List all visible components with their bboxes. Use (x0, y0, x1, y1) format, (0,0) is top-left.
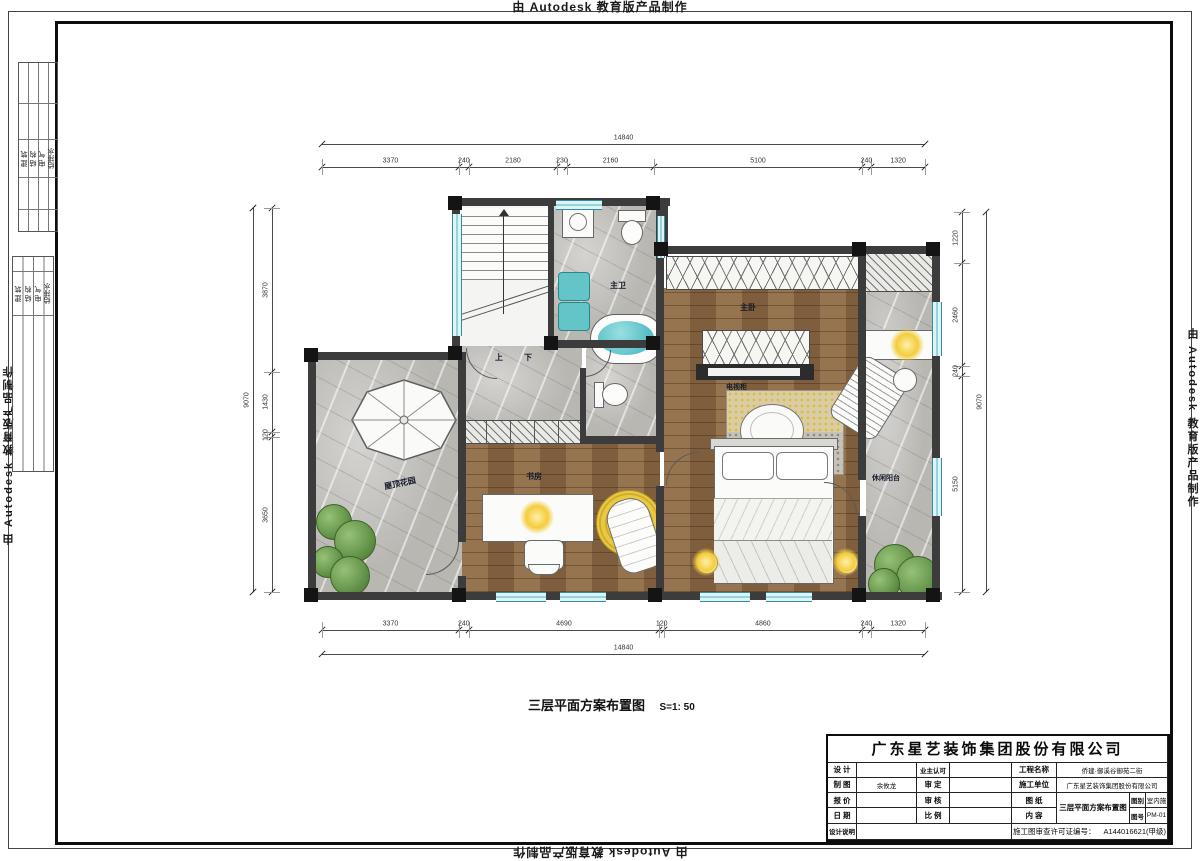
window (932, 458, 942, 516)
column (452, 588, 466, 602)
window (766, 592, 812, 602)
wall (580, 368, 586, 438)
column (926, 588, 940, 602)
dresser (702, 330, 810, 366)
field-note: 设计说明 (828, 824, 857, 840)
dimension-overall: 9070 (977, 394, 984, 410)
field-quote: 报 价 (828, 793, 857, 808)
stair-up-label: 上 (495, 352, 503, 363)
dimension-extension (925, 622, 926, 638)
floor-plan: 主卫 主卧 电视柜 书房 屋顶花园 休闲阳台 上 下 1484033702402… (0, 0, 1200, 859)
wall (656, 486, 664, 592)
washer-drum (569, 213, 587, 231)
field-owner: 业主认可 (917, 763, 950, 778)
window (700, 592, 750, 602)
wall (548, 206, 554, 342)
desk-lamp-glow (520, 500, 554, 534)
room-label-master-bath: 主卫 (610, 280, 626, 291)
stair-treads (462, 208, 548, 280)
dimension-value: 1320 (890, 621, 906, 628)
dimension-tick (921, 650, 928, 657)
dimension-overall: 14840 (614, 135, 633, 142)
room-label-tv-cabinet: 电视柜 (726, 382, 747, 392)
field-project-value: 侨建·御溪谷御苑二街 (1057, 763, 1168, 778)
field-design: 设 计 (828, 763, 857, 778)
dimension-value: 3370 (383, 621, 399, 628)
dimension-value: 2180 (505, 158, 521, 165)
field-content: 内 容 (1012, 808, 1057, 823)
permit-value: A144016621(甲级) (1103, 826, 1166, 837)
title-block: 广东星艺装饰集团股份有限公司 设 计 业主认可 工程名称 侨建·御溪谷御苑二街 … (826, 734, 1170, 842)
dimension-value: 230 (556, 158, 568, 165)
field-approve-value (950, 778, 1012, 793)
field-date-value (857, 808, 917, 823)
dimension-value: 240 (458, 621, 470, 628)
drawing-caption: 三层平面方案布置图 S=1: 50 (528, 695, 695, 715)
dimension-line (272, 208, 273, 592)
duvet (714, 498, 832, 541)
wall (458, 360, 466, 542)
lamp-glow (832, 548, 860, 576)
column (648, 588, 662, 602)
dimension-line (253, 208, 254, 592)
dimension-value: 4860 (755, 621, 771, 628)
dimension-extension (954, 263, 970, 264)
window (496, 592, 546, 602)
window (556, 200, 602, 210)
field-category-value: 室内施 (1146, 793, 1168, 808)
drawing-sheet: { "banner": {"text": "由 Autodesk 教育版产品制作… (0, 0, 1200, 859)
wall (932, 246, 940, 598)
field-permit: 施工图审查许可证编号： A144016621(甲级) (1012, 824, 1168, 840)
dimension-value: 1220 (953, 230, 960, 246)
dimension-overall: 9070 (244, 392, 251, 408)
field-draft: 制 图 (828, 778, 857, 793)
field-design-value (857, 763, 917, 778)
dimension-line (322, 654, 925, 655)
column (304, 588, 318, 602)
wall (858, 516, 866, 594)
dimension-extension (264, 208, 280, 209)
wall (308, 592, 942, 600)
caption-title: 三层平面方案布置图 (528, 698, 645, 713)
dimension-value: 3650 (263, 507, 270, 523)
column (654, 242, 668, 256)
stair-arrow-head (499, 209, 509, 216)
wall (858, 254, 866, 480)
field-project: 工程名称 (1012, 763, 1057, 778)
dimension-line (322, 167, 925, 168)
sink (558, 272, 590, 301)
window (560, 592, 606, 602)
field-content-value: 三层平面方案布置图 (1057, 793, 1130, 824)
wall (580, 436, 664, 444)
room-label-master-bed: 主卧 (740, 302, 756, 313)
dimension-tick (249, 588, 256, 595)
column (646, 336, 660, 350)
dimension-extension (954, 592, 970, 593)
dimension-value: 2460 (953, 307, 960, 323)
corridor-cabinet (462, 420, 586, 444)
field-number: 图号 (1130, 808, 1146, 823)
field-approve: 审 定 (917, 778, 950, 793)
dimension-extension (954, 212, 970, 213)
field-owner-value (950, 763, 1012, 778)
dimension-extension (322, 159, 323, 175)
dimension-line (322, 144, 925, 145)
field-check-value (950, 793, 1012, 808)
side-table (893, 368, 917, 392)
dimension-line (986, 212, 987, 592)
dimension-value: 240 (953, 365, 960, 377)
wall (660, 246, 940, 254)
column (448, 196, 462, 210)
dimension-value: 3370 (383, 158, 399, 165)
column (926, 242, 940, 256)
field-note-value (857, 824, 1012, 840)
room-label-balcony: 休闲阳台 (872, 473, 900, 483)
dimension-value: 240 (458, 158, 470, 165)
wall (308, 352, 466, 360)
field-check: 审 核 (917, 793, 950, 808)
column (852, 242, 866, 256)
tv-screen (708, 368, 800, 376)
dimension-value: 4690 (556, 621, 572, 628)
field-draft-value: 余攸龙 (857, 778, 917, 793)
dimension-value: 1320 (890, 158, 906, 165)
column (646, 196, 660, 210)
dimension-value: 120 (656, 621, 668, 628)
dimension-tick (921, 140, 928, 147)
dimension-tick (982, 588, 989, 595)
dimension-line (962, 212, 963, 592)
field-contractor-value: 广东星艺装饰集团股份有限公司 (1057, 778, 1168, 793)
window (932, 302, 942, 356)
dimension-extension (264, 372, 280, 373)
stair-down-label: 下 (524, 352, 532, 363)
window (452, 214, 462, 336)
column (852, 588, 866, 602)
column (304, 348, 318, 362)
room-label-study: 书房 (526, 471, 542, 482)
chair-back (528, 564, 560, 575)
dimension-value: 240 (861, 621, 873, 628)
bedroom-wardrobe (666, 256, 860, 290)
stair-arrow-line (503, 212, 504, 314)
dimension-extension (654, 159, 655, 175)
caption-scale: S=1: 50 (659, 702, 694, 713)
dimension-value: 1430 (263, 394, 270, 410)
wc-toilet-bowl (602, 383, 628, 406)
dimension-value: 5150 (953, 476, 960, 492)
console-lamp-glow (890, 328, 924, 362)
permit-label: 施工图审查许可证编号： (1013, 826, 1096, 837)
parasol (350, 378, 458, 462)
dimension-extension (925, 159, 926, 175)
dimension-value: 120 (263, 429, 270, 441)
dimension-extension (322, 622, 323, 638)
field-date: 日 期 (828, 808, 857, 823)
field-drawing: 图 纸 (1012, 793, 1057, 808)
field-quote-value (857, 793, 917, 808)
lamp-glow (692, 548, 720, 576)
company-name: 广东星艺装饰集团股份有限公司 (828, 736, 1168, 763)
bed-throw (714, 540, 832, 583)
sink (558, 302, 590, 331)
dimension-overall: 14840 (614, 645, 633, 652)
dimension-value: 240 (861, 158, 873, 165)
field-contractor: 施工单位 (1012, 778, 1057, 793)
field-scale-value (950, 808, 1012, 823)
dimension-extension (264, 592, 280, 593)
field-number-value: PM-01 (1146, 808, 1168, 823)
closet-cabinet (860, 250, 934, 292)
field-scale: 比 例 (917, 808, 950, 823)
pillow (776, 452, 828, 480)
column (448, 346, 462, 360)
tree (330, 556, 370, 596)
toilet-bowl (621, 220, 643, 245)
dimension-value: 5100 (750, 158, 766, 165)
pillow (722, 452, 774, 480)
wall (308, 360, 316, 600)
dimension-value: 2160 (603, 158, 619, 165)
dimension-line (322, 630, 925, 631)
dimension-value: 3870 (263, 282, 270, 298)
field-category: 图别 (1130, 793, 1146, 808)
column (544, 336, 558, 350)
